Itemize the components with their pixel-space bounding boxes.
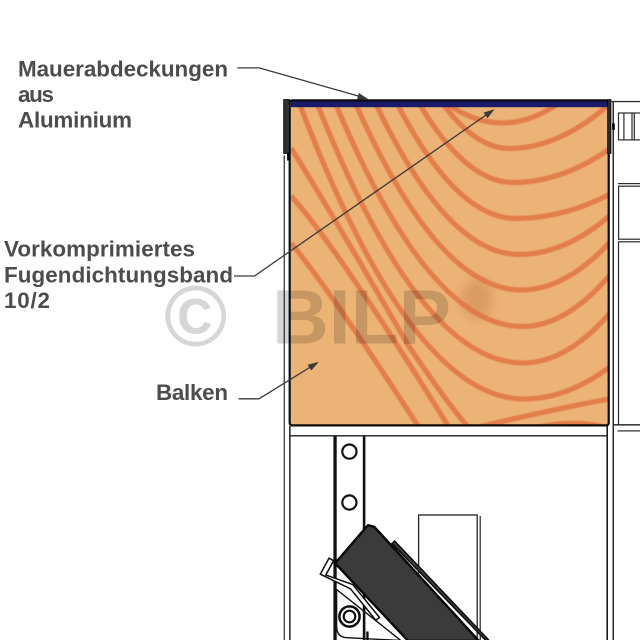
svg-text:Balken: Balken: [156, 380, 228, 405]
svg-text:Fugendichtungsband: Fugendichtungsband: [4, 262, 233, 287]
svg-text:BILP: BILP: [272, 274, 451, 360]
svg-text:Vorkomprimiertes: Vorkomprimiertes: [4, 237, 195, 262]
svg-text:Aluminium: Aluminium: [18, 108, 132, 133]
svg-text:Mauerabdeckungen: Mauerabdeckungen: [18, 56, 228, 81]
svg-text:10/2: 10/2: [4, 288, 50, 313]
svg-text:aus: aus: [18, 82, 54, 107]
